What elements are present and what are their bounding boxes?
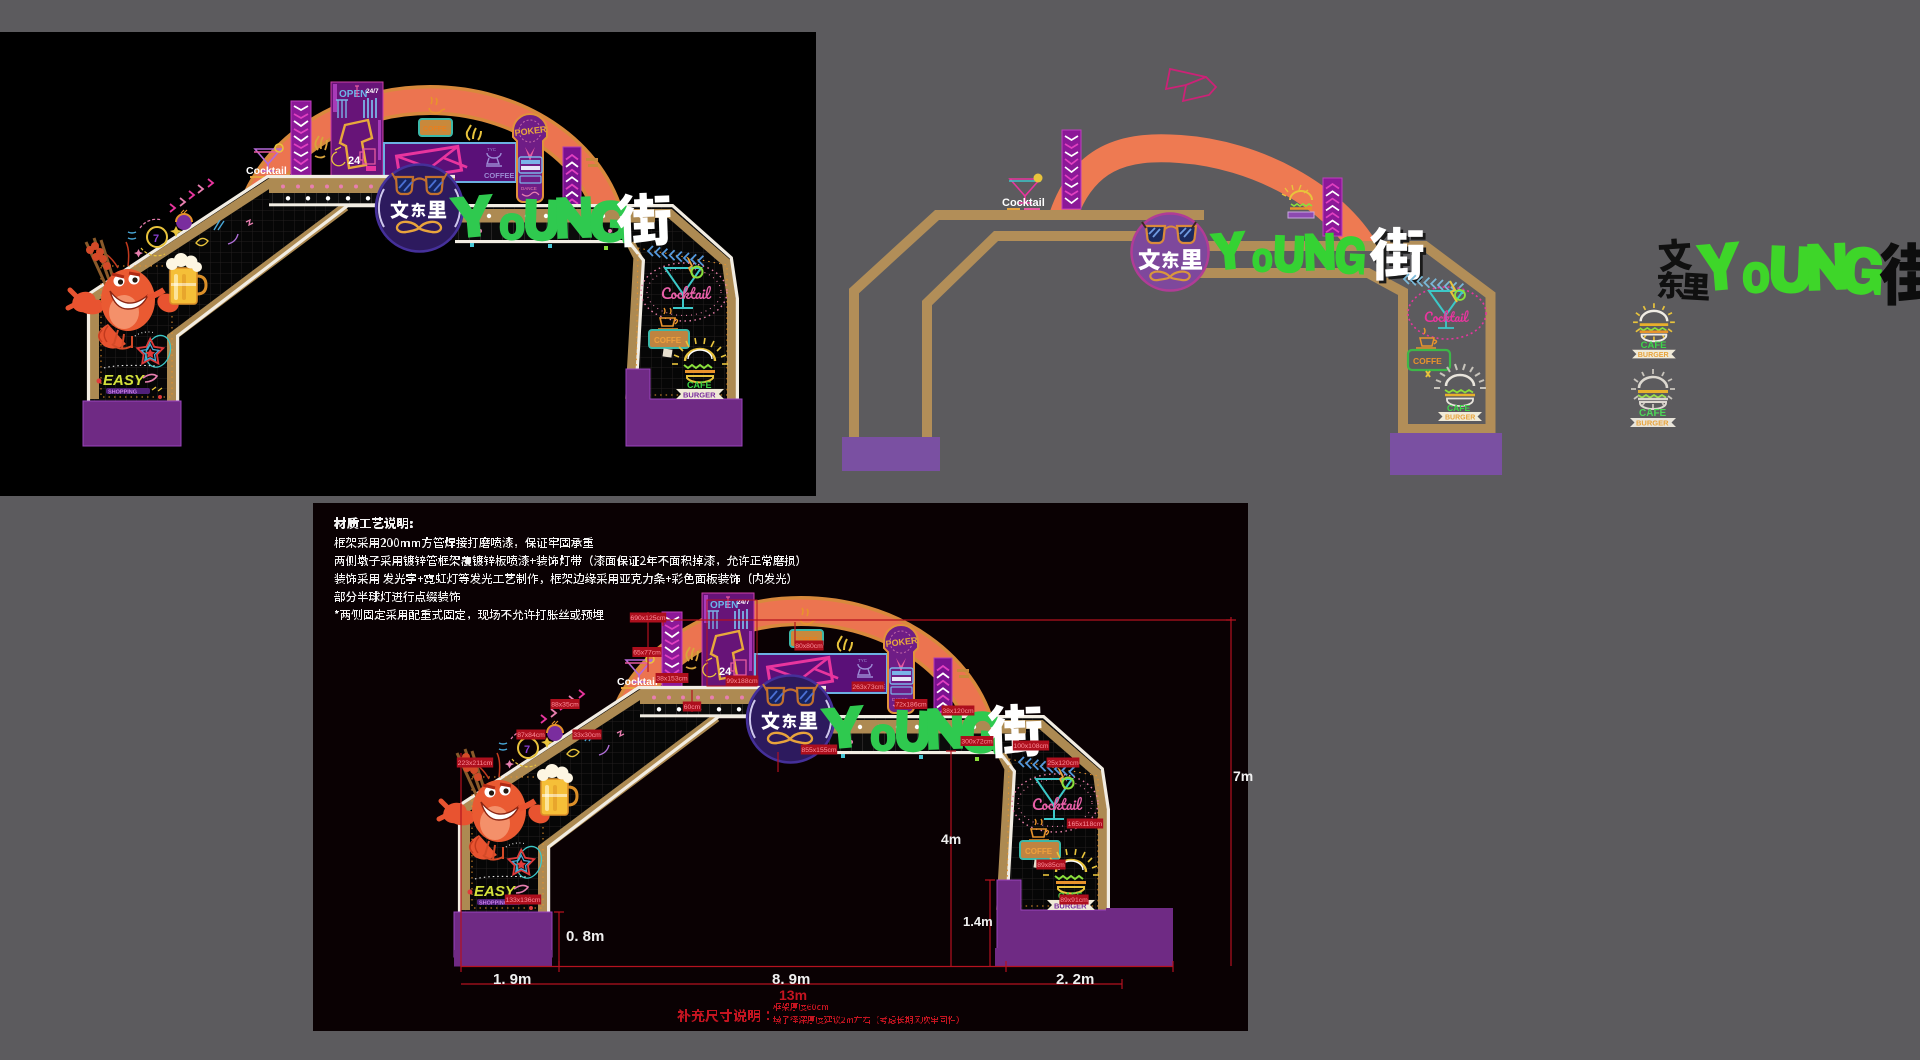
svg-text:Cocktail: Cocktail (1002, 197, 1045, 209)
svg-text:60cm: 60cm (684, 704, 701, 711)
svg-text:BURGER: BURGER (1445, 415, 1475, 422)
svg-text:13m: 13m (779, 987, 807, 1003)
svg-text:89x85cm: 89x85cm (1037, 862, 1065, 869)
svg-text:COFFE: COFFE (1413, 356, 1442, 366)
svg-text:8. 9m: 8. 9m (772, 971, 810, 988)
svg-text:0. 8m: 0. 8m (566, 928, 604, 945)
svg-text:CAFE: CAFE (1447, 403, 1470, 413)
svg-text:38x153cm: 38x153cm (656, 676, 688, 683)
svg-text:CAFE: CAFE (1639, 408, 1667, 419)
svg-text:72x186cm: 72x186cm (895, 702, 927, 709)
svg-text:855x155cm: 855x155cm (801, 747, 836, 754)
svg-text:7m: 7m (1233, 768, 1253, 784)
svg-text:263x73cm: 263x73cm (852, 684, 884, 691)
svg-text:690x125cm: 690x125cm (630, 615, 665, 622)
svg-text:80x80cm: 80x80cm (795, 643, 823, 650)
svg-text:38x120cm: 38x120cm (942, 708, 974, 715)
svg-text:25x120cm: 25x120cm (1047, 760, 1079, 767)
svg-text:33x30cm: 33x30cm (573, 732, 601, 739)
svg-text:300x72cm: 300x72cm (961, 739, 993, 746)
svg-text:100x108cm: 100x108cm (1013, 743, 1048, 750)
svg-text:65x77cm: 65x77cm (633, 650, 661, 657)
svg-text:BURGER: BURGER (1636, 419, 1669, 428)
svg-text:4m: 4m (941, 831, 961, 847)
svg-text:88x35cm: 88x35cm (551, 702, 579, 709)
svg-text:1.4m: 1.4m (963, 914, 993, 929)
svg-text:87x84cm: 87x84cm (517, 732, 545, 739)
svg-text:2. 2m: 2. 2m (1056, 971, 1094, 988)
svg-text:133x136cm: 133x136cm (505, 897, 540, 904)
svg-text:89x91cm: 89x91cm (1060, 897, 1088, 904)
svg-text:BURGER: BURGER (1638, 351, 1669, 359)
svg-text:99x188cm: 99x188cm (726, 678, 758, 685)
svg-text:165x118cm: 165x118cm (1068, 821, 1103, 828)
svg-text:CAFE: CAFE (1641, 340, 1667, 351)
svg-text:1. 9m: 1. 9m (493, 971, 531, 988)
svg-text:223x211cm: 223x211cm (458, 760, 493, 767)
